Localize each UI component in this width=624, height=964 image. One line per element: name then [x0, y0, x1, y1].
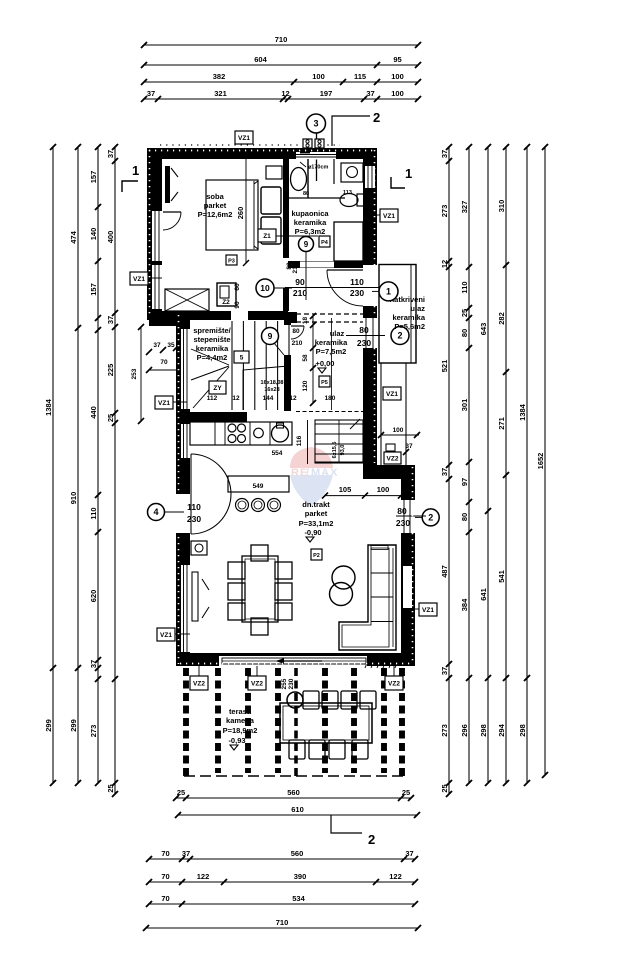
svg-text:9: 9 — [304, 240, 309, 249]
svg-text:70: 70 — [161, 849, 169, 858]
svg-text:2: 2 — [368, 832, 375, 847]
svg-text:2: 2 — [397, 331, 402, 341]
svg-text:255: 255 — [281, 678, 288, 689]
svg-text:144: 144 — [263, 395, 274, 402]
svg-text:P=6,3m2: P=6,3m2 — [295, 227, 326, 236]
svg-text:25: 25 — [106, 414, 115, 422]
svg-text:115: 115 — [354, 72, 366, 81]
svg-text:710: 710 — [276, 918, 289, 927]
svg-text:296: 296 — [460, 724, 469, 737]
svg-text:210: 210 — [293, 288, 307, 298]
svg-text:10: 10 — [260, 283, 270, 293]
svg-text:5: 5 — [240, 355, 244, 362]
svg-text:37: 37 — [405, 443, 413, 450]
svg-text:VZ1: VZ1 — [383, 213, 395, 220]
svg-text:390: 390 — [294, 872, 307, 881]
svg-text:P3: P3 — [228, 259, 235, 265]
svg-text:273: 273 — [89, 725, 98, 738]
svg-text:70: 70 — [160, 359, 168, 366]
svg-text:12: 12 — [281, 89, 289, 98]
svg-text:230: 230 — [187, 514, 201, 524]
svg-text:-0,93: -0,93 — [228, 736, 245, 745]
svg-text:3: 3 — [313, 119, 318, 129]
svg-text:37: 37 — [440, 468, 449, 476]
svg-text:/: / — [306, 467, 309, 479]
svg-text:273: 273 — [440, 724, 449, 737]
svg-text:400: 400 — [106, 231, 115, 244]
svg-text:440: 440 — [89, 406, 98, 419]
svg-text:113: 113 — [343, 190, 352, 196]
svg-text:610: 610 — [291, 805, 304, 814]
svg-text:116: 116 — [296, 435, 303, 446]
svg-text:110: 110 — [460, 281, 469, 293]
svg-text:35: 35 — [167, 342, 175, 349]
svg-text:273: 273 — [440, 205, 449, 218]
svg-text:ulaz: ulaz — [330, 329, 345, 338]
svg-text:1384: 1384 — [518, 403, 527, 421]
svg-text:110: 110 — [187, 502, 201, 512]
svg-text:298: 298 — [518, 724, 527, 737]
svg-text:157: 157 — [89, 171, 98, 184]
svg-text:521: 521 — [440, 360, 449, 373]
svg-text:294: 294 — [497, 723, 506, 736]
svg-text:230: 230 — [357, 338, 371, 348]
svg-text:kupaonica: kupaonica — [291, 209, 329, 218]
svg-text:70: 70 — [161, 894, 169, 903]
svg-text:25: 25 — [440, 784, 449, 792]
svg-text:VZ1: VZ1 — [238, 135, 250, 142]
svg-text:80: 80 — [292, 328, 300, 335]
svg-text:2: 2 — [428, 513, 433, 523]
svg-text:100: 100 — [391, 72, 404, 81]
svg-text:230: 230 — [350, 288, 364, 298]
svg-text:90: 90 — [234, 301, 241, 309]
svg-text:37: 37 — [106, 150, 115, 158]
svg-text:keramika: keramika — [294, 218, 327, 227]
svg-text:299: 299 — [44, 719, 53, 732]
svg-text:1: 1 — [386, 287, 391, 297]
svg-text:100: 100 — [391, 89, 404, 98]
svg-text:VZ1: VZ1 — [133, 276, 145, 283]
svg-text:4: 4 — [153, 507, 158, 517]
svg-text:parket: parket — [305, 509, 328, 518]
svg-text:260: 260 — [236, 207, 245, 220]
svg-text:1: 1 — [405, 166, 412, 181]
svg-text:18: 18 — [302, 317, 309, 325]
svg-text:230: 230 — [288, 678, 295, 689]
svg-text:122: 122 — [389, 872, 402, 881]
svg-text:MAX: MAX — [311, 467, 338, 479]
svg-text:VZ2: VZ2 — [388, 681, 400, 688]
svg-text:80: 80 — [460, 329, 469, 337]
svg-text:58: 58 — [302, 354, 309, 362]
svg-text:110: 110 — [350, 277, 364, 287]
svg-text:37: 37 — [440, 150, 449, 158]
svg-text:80: 80 — [359, 325, 369, 335]
svg-text:37: 37 — [440, 667, 449, 675]
svg-text:60: 60 — [234, 283, 241, 291]
svg-text:37: 37 — [89, 660, 98, 668]
svg-text:321: 321 — [214, 89, 227, 98]
svg-text:122: 122 — [197, 872, 210, 881]
svg-text:terasa: terasa — [229, 707, 252, 716]
svg-text:12: 12 — [289, 395, 297, 402]
svg-text:VZ2: VZ2 — [193, 681, 205, 688]
svg-text:1: 1 — [132, 163, 139, 178]
svg-text:37: 37 — [147, 89, 155, 98]
svg-text:12: 12 — [440, 260, 449, 268]
svg-text:643: 643 — [479, 323, 488, 336]
svg-text:P4: P4 — [321, 240, 329, 246]
svg-text:549: 549 — [253, 483, 264, 490]
svg-text:Z1: Z1 — [263, 233, 271, 240]
svg-text:keramika: keramika — [392, 313, 425, 322]
svg-text:37: 37 — [106, 316, 115, 324]
svg-text:80: 80 — [303, 191, 309, 197]
svg-text:327: 327 — [460, 201, 469, 214]
svg-text:16x28: 16x28 — [264, 387, 279, 393]
svg-text:100: 100 — [312, 72, 325, 81]
svg-text:12: 12 — [232, 395, 240, 402]
svg-text:197: 197 — [320, 89, 333, 98]
svg-text:kamena: kamena — [226, 716, 255, 725]
svg-text:-0,90: -0,90 — [304, 528, 321, 537]
svg-text:⌀170cm: ⌀170cm — [308, 165, 329, 171]
svg-text:P=33,1m2: P=33,1m2 — [299, 519, 334, 528]
svg-text:310: 310 — [497, 200, 506, 213]
svg-text:560: 560 — [287, 788, 300, 797]
svg-text:120: 120 — [302, 380, 309, 391]
svg-text:VZ1: VZ1 — [158, 400, 170, 407]
svg-text:604: 604 — [254, 55, 267, 64]
svg-text:554: 554 — [272, 450, 283, 457]
svg-text:37: 37 — [405, 849, 413, 858]
svg-text:dn.trakt: dn.trakt — [302, 500, 330, 509]
svg-text:P=18,9m2: P=18,9m2 — [223, 726, 258, 735]
svg-text:910: 910 — [69, 492, 78, 505]
svg-text:1384: 1384 — [44, 398, 53, 416]
svg-text:spremište/: spremište/ — [193, 326, 231, 335]
svg-text:Z2: Z2 — [222, 299, 230, 306]
svg-text:710: 710 — [275, 35, 288, 44]
svg-text:93,0: 93,0 — [340, 445, 346, 456]
svg-text:25: 25 — [106, 784, 115, 792]
svg-text:6x15,5: 6x15,5 — [332, 442, 338, 459]
svg-text:P=7,5m2: P=7,5m2 — [316, 347, 347, 356]
svg-text:560: 560 — [291, 849, 304, 858]
svg-text:25: 25 — [460, 309, 469, 317]
svg-text:282: 282 — [497, 312, 506, 325]
svg-text:VZ1: VZ1 — [160, 632, 172, 639]
svg-text:487: 487 — [440, 565, 449, 578]
svg-text:16x18,08: 16x18,08 — [261, 380, 284, 386]
svg-text:180: 180 — [325, 395, 336, 402]
svg-text:soba: soba — [206, 192, 224, 201]
svg-text:100: 100 — [393, 427, 404, 434]
svg-text:ulaz: ulaz — [410, 304, 425, 313]
svg-text:VZ2: VZ2 — [251, 681, 263, 688]
svg-text:37: 37 — [153, 342, 161, 349]
svg-text:25: 25 — [402, 788, 410, 797]
svg-text:382: 382 — [213, 72, 226, 81]
svg-text:157: 157 — [89, 283, 98, 296]
svg-text:VZ2: VZ2 — [387, 456, 399, 463]
svg-text:299: 299 — [69, 719, 78, 732]
svg-text:90: 90 — [295, 277, 305, 287]
svg-text:384: 384 — [460, 598, 469, 611]
svg-text:P2: P2 — [313, 553, 320, 559]
svg-text:541: 541 — [497, 570, 506, 583]
svg-text:80: 80 — [397, 506, 407, 516]
svg-text:210: 210 — [292, 340, 303, 347]
svg-text:parket: parket — [204, 201, 227, 210]
svg-text:210: 210 — [292, 262, 299, 273]
svg-text:2: 2 — [373, 110, 380, 125]
svg-text:70: 70 — [161, 872, 169, 881]
svg-text:VZ1: VZ1 — [386, 391, 398, 398]
svg-text:271: 271 — [497, 417, 506, 430]
svg-text:301: 301 — [460, 399, 469, 412]
svg-text:25: 25 — [177, 788, 185, 797]
svg-text:230: 230 — [396, 518, 410, 528]
svg-text:620: 620 — [89, 590, 98, 603]
svg-text:37: 37 — [182, 849, 190, 858]
svg-text:641: 641 — [479, 588, 488, 601]
svg-text:P=5,6m2: P=5,6m2 — [394, 322, 425, 331]
svg-text:100: 100 — [377, 485, 390, 494]
svg-text:ZY: ZY — [213, 385, 222, 392]
svg-text:VZ1: VZ1 — [422, 607, 434, 614]
svg-text:225: 225 — [106, 364, 115, 377]
svg-text:P5: P5 — [321, 380, 328, 386]
svg-text:110: 110 — [89, 507, 98, 519]
svg-text:95: 95 — [393, 55, 401, 64]
svg-text:1652: 1652 — [536, 453, 545, 470]
svg-text:534: 534 — [292, 894, 305, 903]
svg-text:P=12,6m2: P=12,6m2 — [198, 210, 233, 219]
svg-text:140: 140 — [89, 228, 98, 241]
svg-text:keramika: keramika — [196, 344, 229, 353]
svg-text:474: 474 — [69, 230, 78, 243]
svg-text:80: 80 — [460, 513, 469, 521]
svg-text:112: 112 — [207, 395, 218, 402]
svg-text:105: 105 — [339, 485, 352, 494]
svg-text:37: 37 — [366, 89, 374, 98]
svg-text:97: 97 — [460, 478, 469, 486]
svg-text:9: 9 — [268, 331, 273, 341]
svg-text:253: 253 — [131, 368, 138, 379]
svg-text:stepenište: stepenište — [193, 335, 230, 344]
svg-text:298: 298 — [479, 724, 488, 737]
